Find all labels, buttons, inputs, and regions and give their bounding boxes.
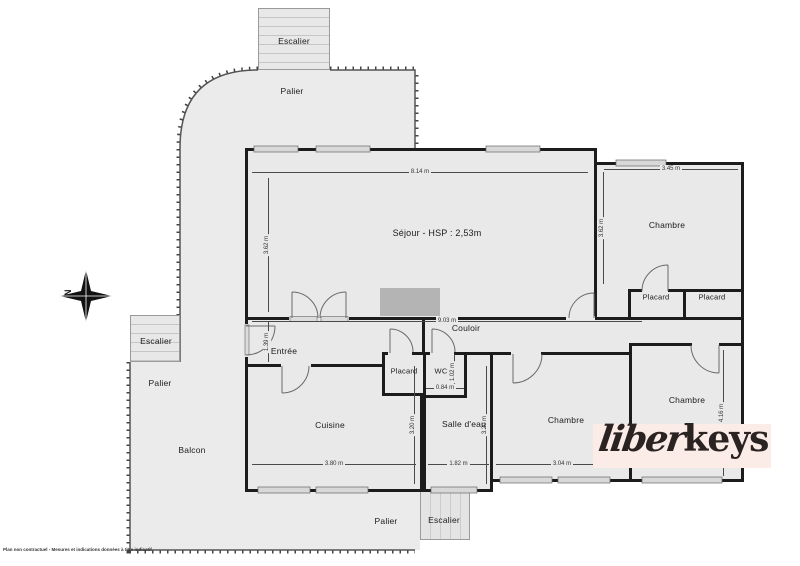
label-couloir: Couloir (452, 323, 480, 333)
dim-wc-width: 0.84 m (426, 382, 464, 393)
dim-sejour-width: 8.14 m (252, 166, 588, 177)
label-salle-eau: Salle d'eau (442, 419, 486, 429)
compass: N (60, 270, 112, 322)
compass-star-facets (60, 270, 112, 322)
compass-star (60, 270, 112, 322)
label-escalier-bottom: Escalier (428, 515, 460, 525)
dim-couloir-width: 9.03 m (252, 315, 642, 326)
label-placard-mid: Placard (391, 367, 418, 376)
label-palier-bottom: Palier (375, 516, 398, 526)
label-chambre-top-right: Chambre (649, 220, 685, 230)
plan-disclaimer: Plan non contractuel - Mesures et indica… (3, 547, 152, 552)
label-chambre-bottom-right: Chambre (669, 395, 705, 405)
label-placard-2: Placard (699, 293, 726, 302)
dim-sejour-height: 3.62 m (262, 178, 273, 312)
label-sejour: Séjour - HSP : 2,53m (393, 228, 482, 238)
logo-bold-part: keys (683, 418, 768, 460)
floor-plan: N 8.14 m 3.62 m 3.45 m 3.62 m 9.03 m 1.3… (0, 0, 800, 566)
logo-script-part: liber (595, 411, 687, 467)
label-wc: WC (435, 367, 448, 376)
label-chambre-bottom-mid: Chambre (548, 415, 584, 425)
label-palier-top: Palier (281, 86, 304, 96)
label-placard-1: Placard (643, 293, 670, 302)
label-balcon: Balcon (178, 445, 205, 455)
label-escalier-top: Escalier (278, 36, 310, 46)
label-palier-left: Palier (149, 378, 172, 388)
dim-chambre-tr-width: 3.45 m (604, 163, 738, 174)
compass-north-label: N (63, 290, 73, 297)
dim-chambre-tr-height: 3.62 m (597, 172, 608, 284)
railing-ticks-top (330, 70, 415, 148)
liberkeys-logo: liberkeys (599, 411, 768, 467)
label-escalier-left: Escalier (140, 336, 172, 346)
label-cuisine: Cuisine (315, 420, 345, 430)
label-entree: Entrée (271, 346, 297, 356)
dim-salle-eau-width: 1.82 m (428, 458, 489, 469)
dim-entree-height: 1.39 m (262, 322, 273, 362)
dim-cuisine-width: 3.80 m (252, 458, 416, 469)
